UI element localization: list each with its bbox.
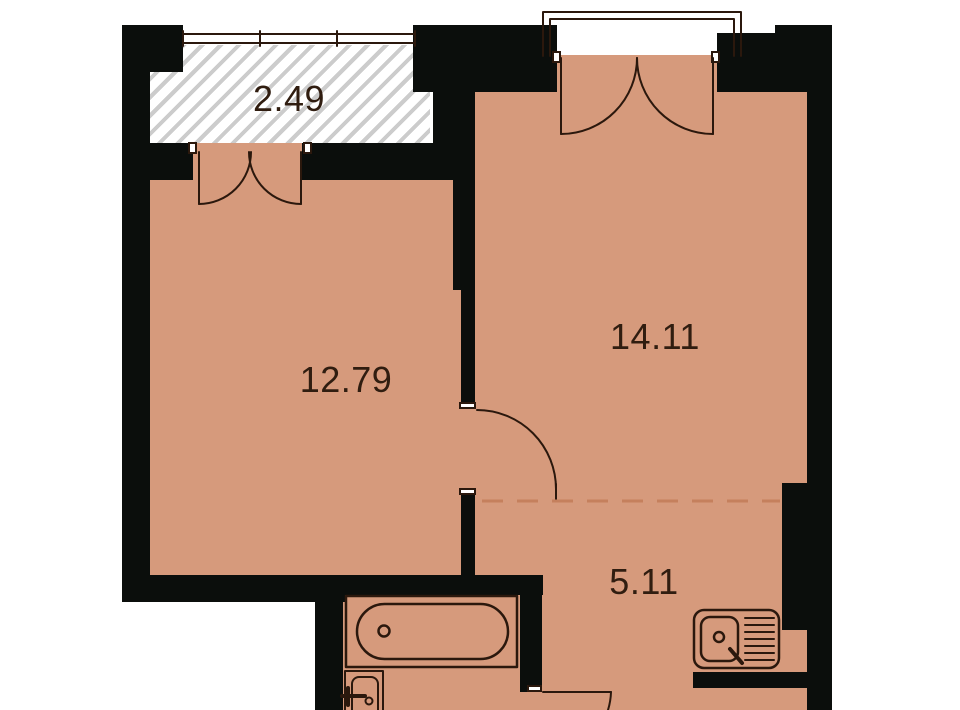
wall-segment bbox=[122, 143, 193, 180]
room-area-label: 2.49 bbox=[253, 78, 325, 120]
floor-plan: 2.49 12.79 14.11 5.11 bbox=[0, 0, 960, 710]
window-icon bbox=[183, 31, 415, 46]
room-area-label: 12.79 bbox=[300, 359, 393, 401]
wall-segment bbox=[122, 25, 150, 602]
door-frame-tick bbox=[459, 488, 476, 495]
wall-segment bbox=[315, 575, 343, 710]
bathroom-floor bbox=[315, 575, 543, 710]
room-area-label: 5.11 bbox=[609, 561, 678, 603]
door-frame-tick bbox=[552, 51, 561, 63]
wall-segment bbox=[717, 33, 777, 92]
wall-segment bbox=[122, 575, 345, 602]
balcony-rail-area bbox=[543, 10, 741, 55]
door-frame-tick bbox=[303, 142, 312, 154]
wall-segment bbox=[461, 494, 475, 577]
wall-segment bbox=[461, 290, 475, 403]
wall-segment bbox=[520, 595, 542, 692]
door-frame-tick bbox=[188, 142, 197, 154]
wall-segment bbox=[453, 180, 475, 290]
wall-segment bbox=[693, 672, 807, 688]
wall-segment bbox=[122, 25, 183, 72]
room-area-label: 14.11 bbox=[610, 316, 700, 358]
wall-segment bbox=[782, 483, 807, 630]
door-frame-tick bbox=[711, 51, 720, 63]
wall-segment bbox=[433, 92, 475, 180]
wall-segment bbox=[343, 575, 543, 595]
door-frame-tick bbox=[527, 685, 542, 692]
door-frame-tick bbox=[459, 402, 476, 409]
wall-segment bbox=[807, 25, 832, 710]
wall-segment bbox=[413, 25, 557, 92]
